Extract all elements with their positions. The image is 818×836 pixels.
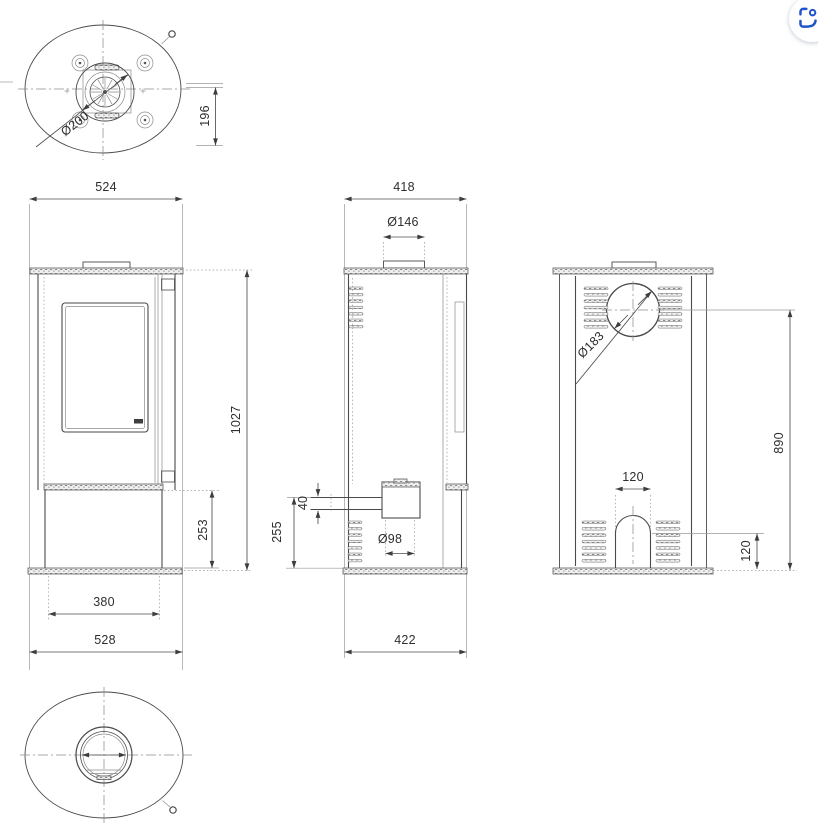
dim-side-depth: 422 [394, 634, 415, 647]
dim-top-collar-offset: 196 [199, 105, 212, 126]
dim-front-top-width: 524 [95, 181, 116, 194]
door-handle [134, 419, 143, 424]
drawing-linework [0, 0, 818, 836]
dim-side-top-depth: 418 [393, 181, 414, 194]
dim-back-flue-center-height: 890 [773, 432, 786, 453]
dim-front-base-height: 253 [197, 519, 210, 540]
dim-front-width: 528 [94, 634, 115, 647]
dim-front-height: 1027 [230, 406, 243, 435]
dim-side-air-inlet-diameter: Ø98 [378, 533, 402, 546]
technical-drawing-canvas: 524 1027 253 380 528 418 Ø146 40 255 Ø98… [0, 0, 818, 836]
bottom-view [20, 687, 192, 824]
back-view [553, 262, 797, 574]
dim-side-base-height: 255 [271, 521, 284, 542]
top-view [0, 20, 223, 160]
dim-front-base-width: 380 [93, 596, 114, 609]
front-view [28, 199, 252, 670]
dim-back-arch-width: 120 [622, 471, 643, 484]
dim-side-flue-collar-diameter: Ø146 [387, 216, 418, 229]
dim-side-air-inlet-drop: 40 [297, 496, 310, 510]
side-view [286, 199, 468, 658]
visual-search-icon [797, 5, 818, 31]
dim-back-arch-center-height: 120 [740, 540, 753, 561]
